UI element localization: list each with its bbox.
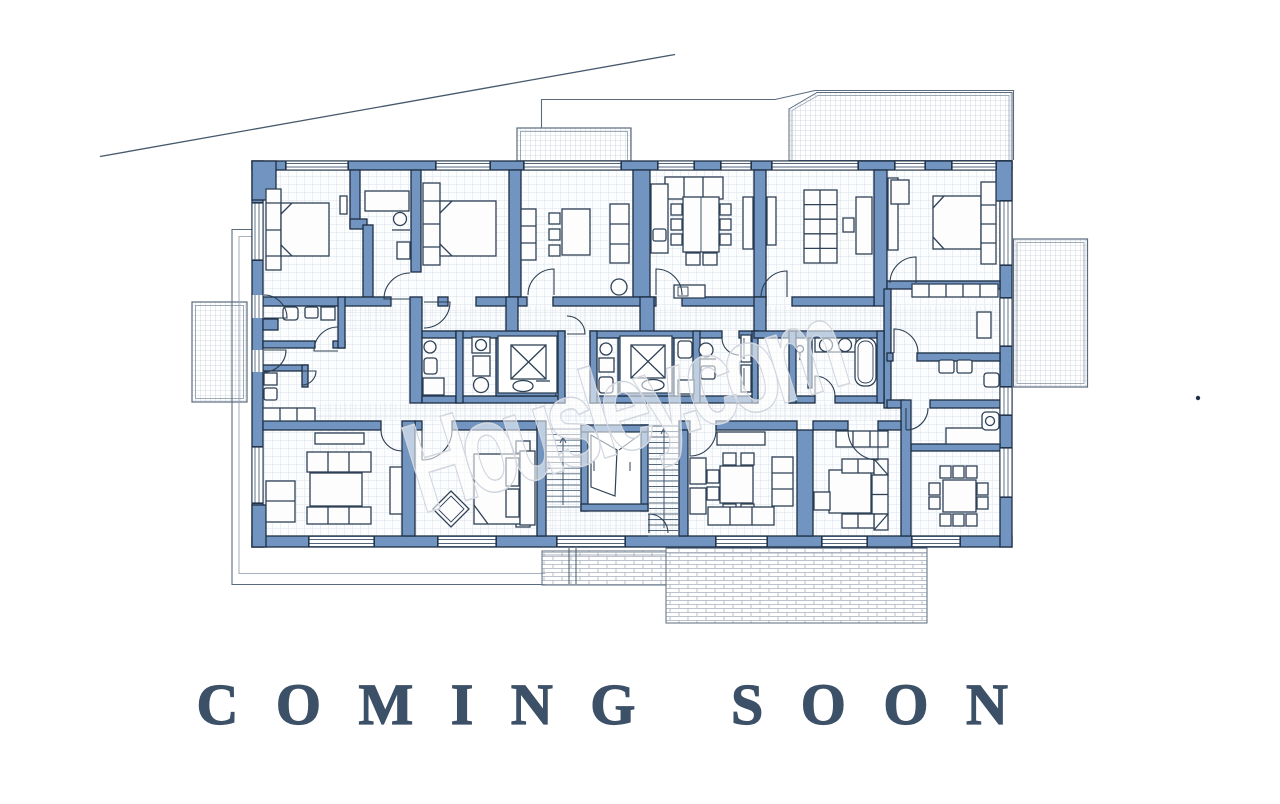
svg-text:SOON: SOON <box>731 672 1045 737</box>
svg-text:COMING: COMING <box>197 672 673 737</box>
